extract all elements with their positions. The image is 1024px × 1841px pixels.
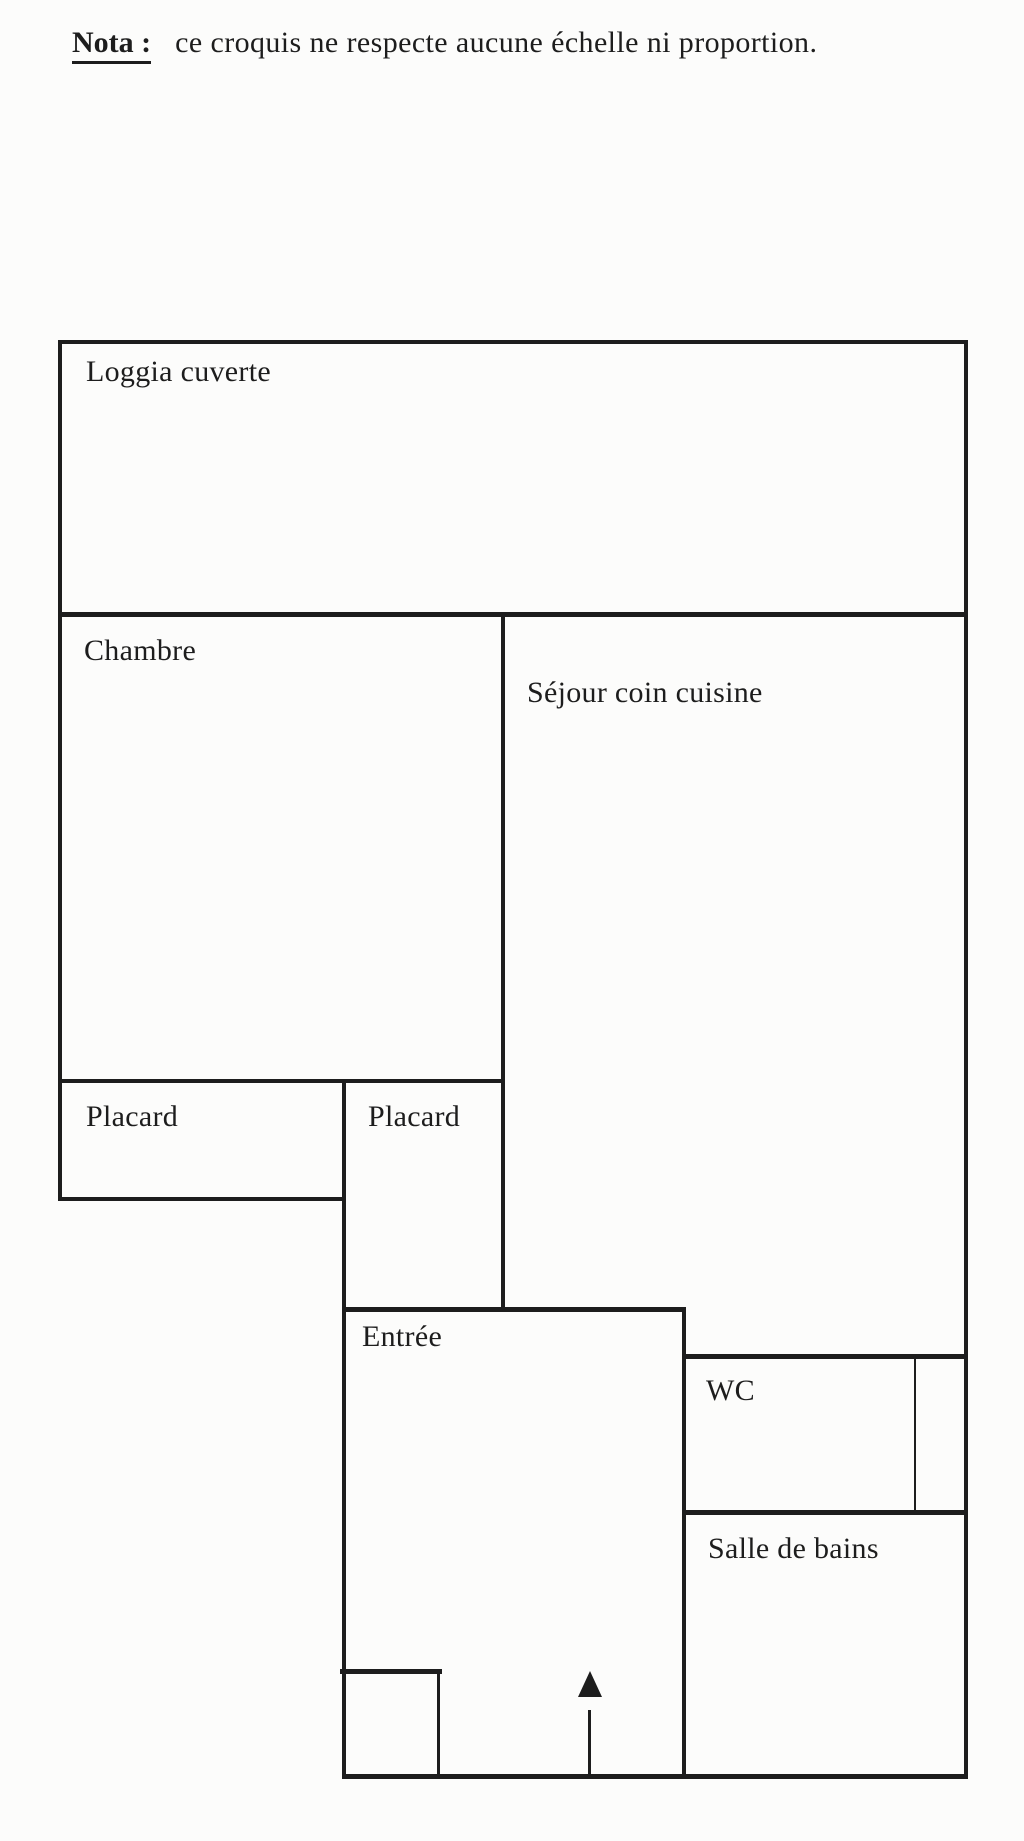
scanned-floor-plan-page: Nota : ce croquis ne respecte aucune éch…: [0, 0, 1024, 1841]
wall-outer-bottom: [342, 1774, 968, 1779]
room-label-sejour: Séjour coin cuisine: [527, 676, 763, 710]
wall-loggia-bottom: [58, 612, 968, 617]
wall-entree-right: [682, 1307, 686, 1779]
room-label-entree: Entrée: [362, 1320, 442, 1354]
wall-wc-inner-partition: [914, 1354, 916, 1515]
room-label-salle-de-bains: Salle de bains: [708, 1532, 879, 1566]
wall-outer-left: [58, 340, 62, 1201]
room-label-placard-right: Placard: [368, 1100, 460, 1134]
wall-placard-left-bottom: [58, 1197, 346, 1201]
note: Nota : ce croquis ne respecte aucune éch…: [72, 26, 817, 64]
wall-entree-box-top: [340, 1669, 442, 1674]
wall-entree-top: [342, 1307, 686, 1312]
entrance-arrow-icon: [578, 1671, 602, 1697]
room-label-placard-left: Placard: [86, 1100, 178, 1134]
wall-wc-top: [682, 1354, 968, 1359]
room-label-wc: WC: [706, 1374, 755, 1408]
wall-outer-right: [964, 340, 968, 1779]
entrance-arrow-stem: [588, 1710, 591, 1774]
note-label: Nota :: [72, 26, 151, 64]
wall-entree-box-right: [437, 1669, 440, 1777]
wall-wc-bottom-sdb-top: [682, 1510, 968, 1515]
wall-chambre-sejour-divider: [501, 612, 505, 1312]
wall-chambre-bottom: [58, 1079, 505, 1083]
wall-placard-divider-outer-left: [342, 1079, 346, 1779]
note-text: ce croquis ne respecte aucune échelle ni…: [175, 26, 817, 60]
room-label-chambre: Chambre: [84, 634, 196, 668]
room-label-loggia: Loggia cuverte: [86, 355, 271, 389]
wall-outer-top: [58, 340, 968, 344]
